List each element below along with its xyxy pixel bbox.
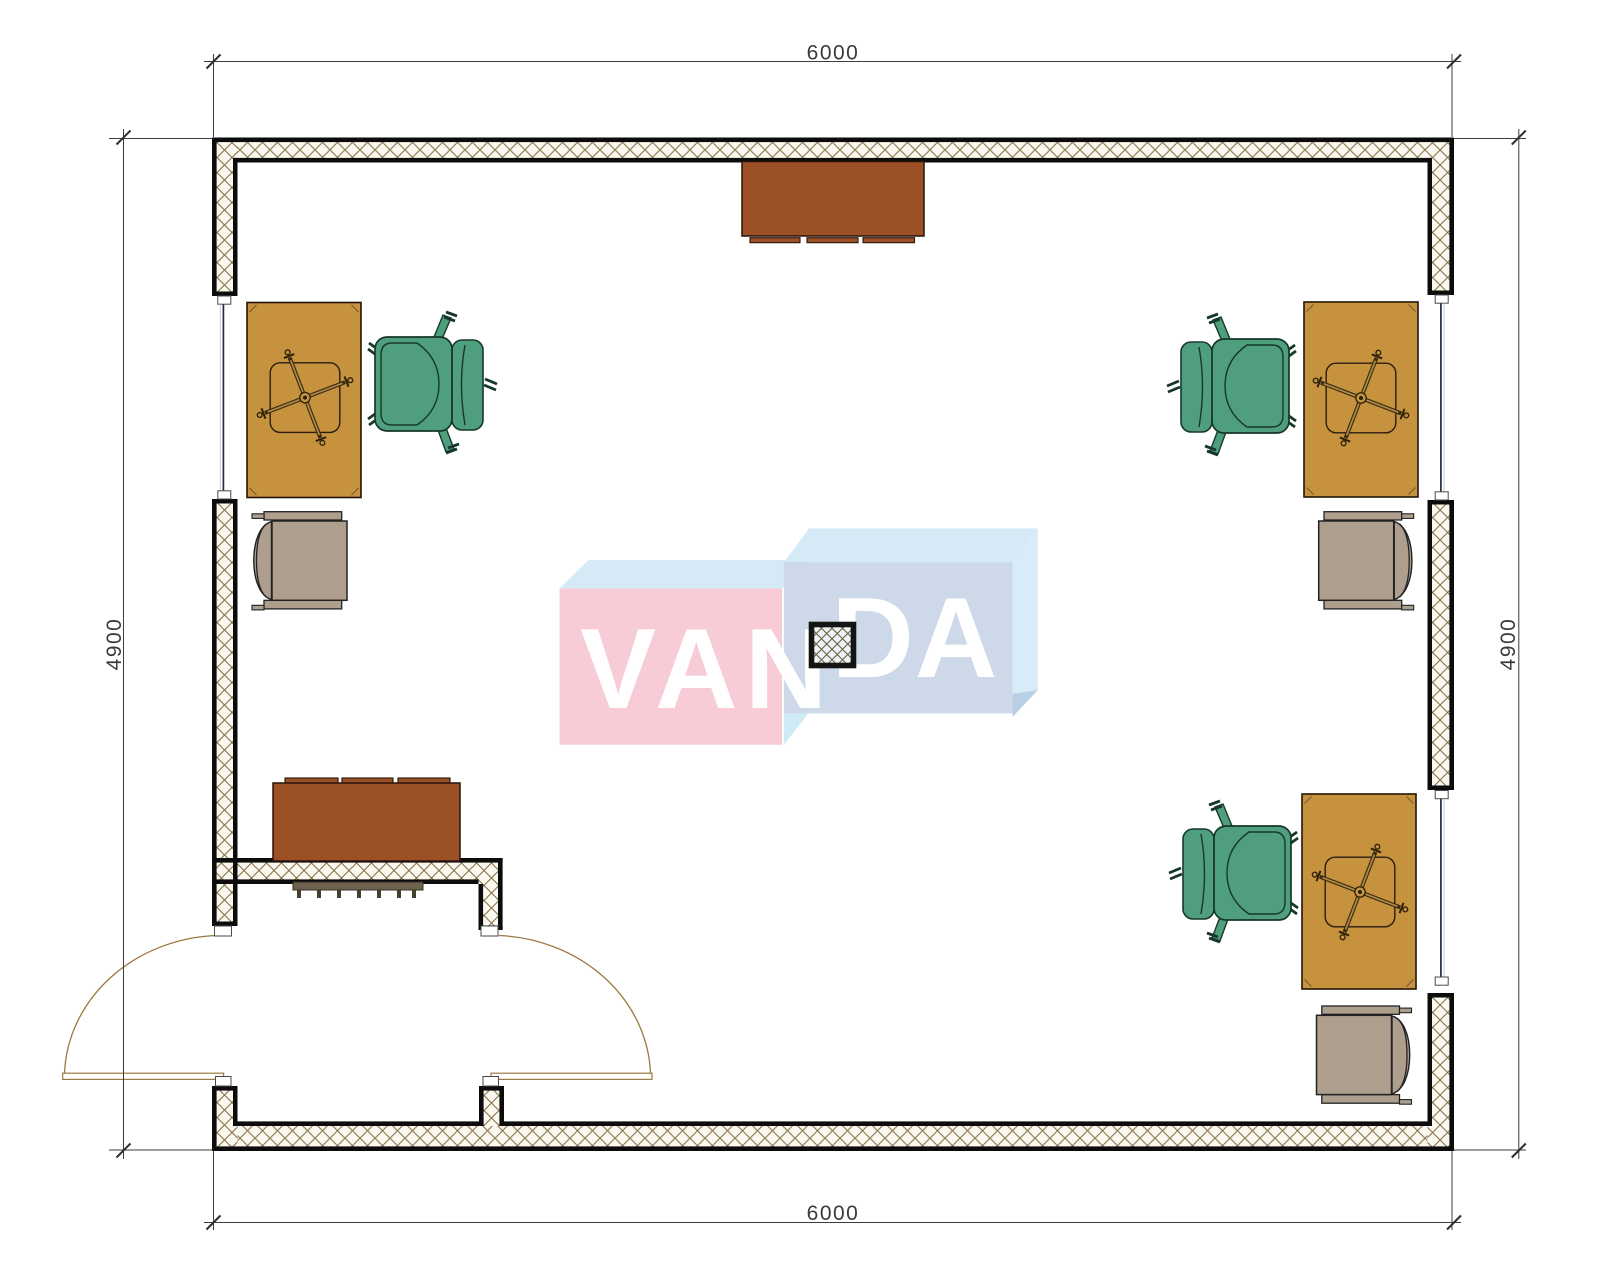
svg-text:VAN: VAN (580, 606, 835, 733)
svg-text:DA: DA (832, 575, 999, 702)
svg-text:6000: 6000 (807, 1202, 860, 1225)
svg-text:6000: 6000 (807, 42, 860, 65)
svg-text:4900: 4900 (1497, 618, 1520, 671)
svg-text:4900: 4900 (103, 618, 126, 671)
